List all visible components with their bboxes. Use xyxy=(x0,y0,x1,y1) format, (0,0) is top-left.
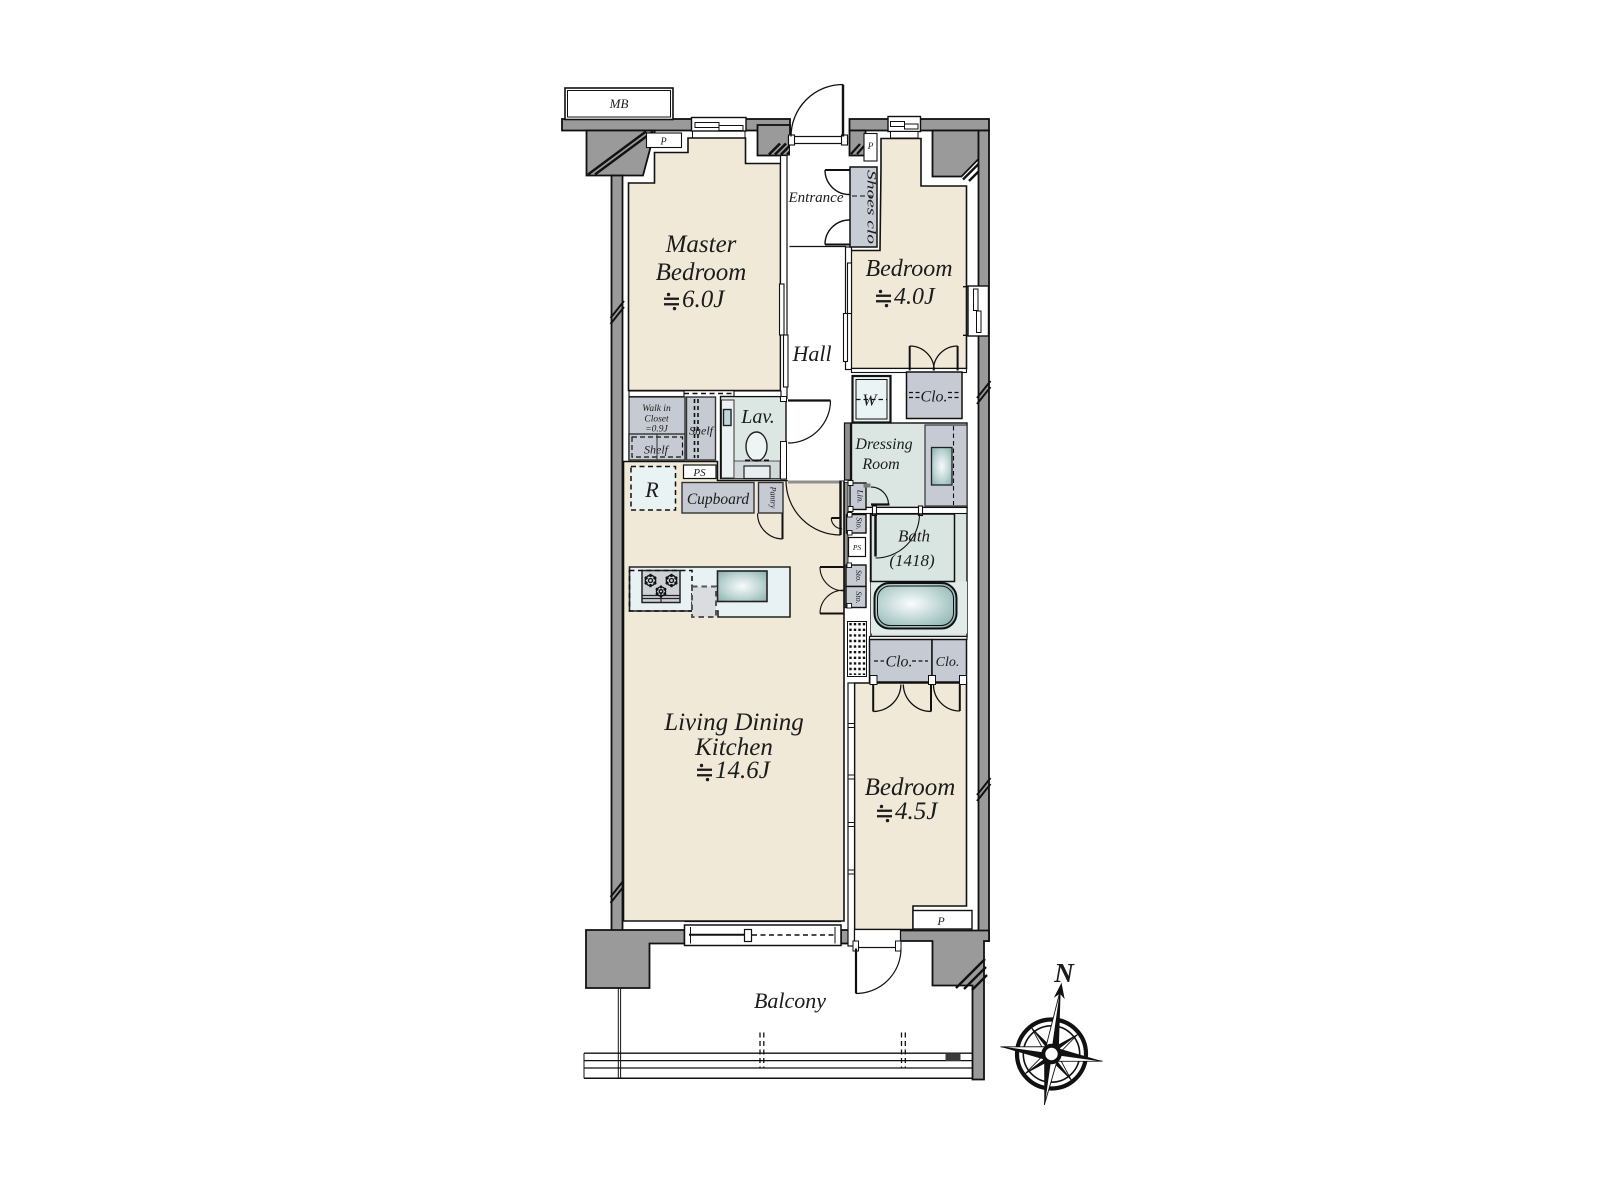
svg-text:Master: Master xyxy=(665,231,737,258)
svg-text:Shelf: Shelf xyxy=(644,443,670,457)
svg-text:P: P xyxy=(867,141,874,151)
svg-text:N: N xyxy=(1053,958,1075,988)
svg-text:6.0J: 6.0J xyxy=(682,286,726,313)
svg-text:Shoes clo: Shoes clo xyxy=(865,170,880,245)
svg-text:Lin.: Lin. xyxy=(856,489,866,503)
svg-text:14.6J: 14.6J xyxy=(715,757,772,784)
svg-text:Clo.: Clo. xyxy=(920,389,947,406)
svg-text:W: W xyxy=(862,391,878,410)
svg-text:PS: PS xyxy=(852,543,862,552)
svg-text:Walk in: Walk in xyxy=(642,404,671,414)
svg-text:Dressing: Dressing xyxy=(854,436,912,453)
svg-text:Lav.: Lav. xyxy=(740,406,775,428)
svg-text:Sto.: Sto. xyxy=(855,517,864,529)
svg-text:Pantry: Pantry xyxy=(769,486,778,509)
svg-text:Bath: Bath xyxy=(898,527,930,546)
svg-text:4.5J: 4.5J xyxy=(895,798,939,825)
svg-text:Sto.: Sto. xyxy=(854,591,863,603)
svg-text:=0.9J: =0.9J xyxy=(645,425,668,435)
svg-text:Closet: Closet xyxy=(644,415,669,425)
svg-text:Cupboard: Cupboard xyxy=(687,491,750,508)
svg-text:Clo.: Clo. xyxy=(936,655,960,670)
svg-text:(1418): (1418) xyxy=(889,551,935,570)
svg-text:P: P xyxy=(936,914,945,928)
svg-text:MB: MB xyxy=(609,96,629,111)
svg-text:Bedroom: Bedroom xyxy=(865,256,952,282)
svg-text:Sto.: Sto. xyxy=(854,570,863,582)
svg-text:Living Dining: Living Dining xyxy=(663,709,804,736)
svg-text:4.0J: 4.0J xyxy=(894,284,936,310)
svg-text:Room: Room xyxy=(861,456,899,473)
svg-text:Bedroom: Bedroom xyxy=(656,259,747,286)
svg-text:Entrance: Entrance xyxy=(788,190,844,206)
svg-text:Bedroom: Bedroom xyxy=(865,774,956,801)
svg-text:Balcony: Balcony xyxy=(754,988,826,1013)
svg-text:Shelf: Shelf xyxy=(689,424,715,438)
svg-text:PS: PS xyxy=(692,467,706,479)
svg-text:P: P xyxy=(659,137,666,148)
svg-text:R: R xyxy=(644,477,659,502)
svg-text:Clo.: Clo. xyxy=(885,654,912,671)
svg-text:Hall: Hall xyxy=(791,341,831,366)
